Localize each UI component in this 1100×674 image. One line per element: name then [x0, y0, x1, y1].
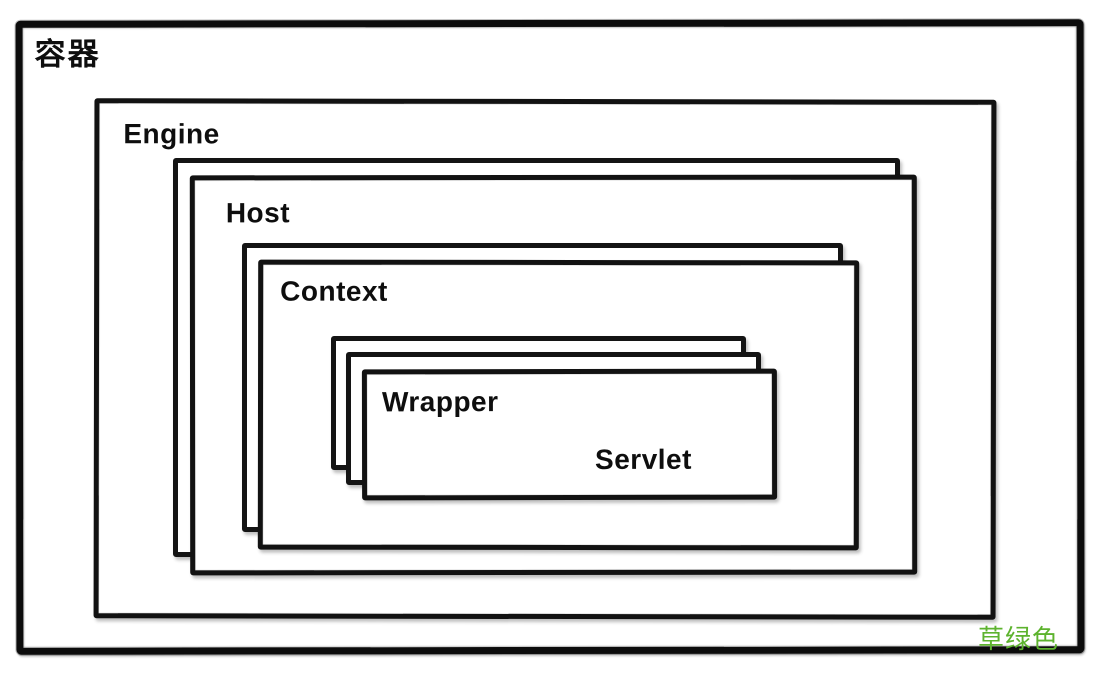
- container-label: 容器: [35, 38, 101, 72]
- context-label: Context: [280, 277, 388, 308]
- wrapper-box: Wrapper Servlet: [362, 369, 777, 501]
- host-label: Host: [226, 198, 290, 229]
- engine-label: Engine: [123, 119, 219, 150]
- servlet-label: Servlet: [595, 445, 692, 476]
- wrapper-label: Wrapper: [382, 387, 499, 418]
- color-annotation: 草绿色: [978, 619, 1059, 656]
- diagram-canvas: 容器 Engine Host Context Wrapper Servlet 草…: [0, 0, 1100, 674]
